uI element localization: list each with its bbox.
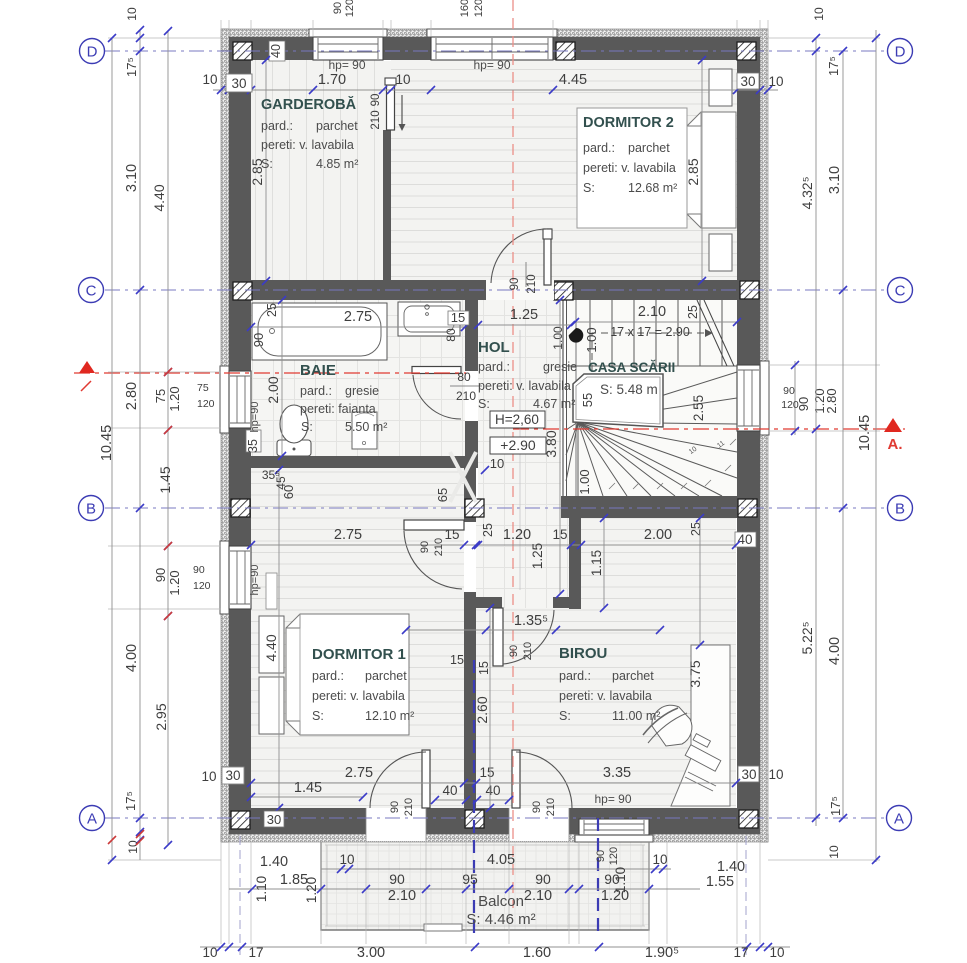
- svg-text:10: 10: [202, 72, 217, 87]
- svg-text:90: 90: [153, 568, 168, 582]
- svg-text:DORMITOR 1: DORMITOR 1: [312, 646, 406, 663]
- svg-text:2.80: 2.80: [124, 382, 140, 410]
- svg-text:gresie: gresie: [345, 384, 379, 398]
- svg-text:C: C: [895, 283, 906, 300]
- svg-text:D: D: [87, 44, 98, 61]
- svg-text:1.25: 1.25: [510, 307, 538, 323]
- svg-text:2.10: 2.10: [388, 888, 416, 904]
- svg-text:parchet: parchet: [612, 669, 654, 683]
- svg-text:2.95: 2.95: [153, 703, 169, 730]
- svg-text:B: B: [895, 501, 905, 518]
- svg-text:10: 10: [201, 769, 216, 784]
- svg-text:120: 120: [608, 847, 620, 865]
- svg-text:hp=90: hp=90: [249, 565, 261, 596]
- svg-text:S: 5.48 m: S: 5.48 m: [600, 382, 658, 397]
- svg-text:90: 90: [389, 871, 405, 887]
- svg-text:30: 30: [231, 76, 246, 91]
- svg-text:210: 210: [403, 798, 415, 816]
- svg-text:60: 60: [281, 485, 296, 499]
- svg-text:17⁵: 17⁵: [124, 57, 139, 77]
- svg-text:5.22⁵: 5.22⁵: [799, 621, 815, 654]
- svg-text:160: 160: [459, 0, 471, 17]
- svg-text:4.00: 4.00: [827, 637, 843, 665]
- svg-text:1.20: 1.20: [167, 386, 182, 411]
- svg-text:40: 40: [485, 783, 500, 798]
- svg-text:10: 10: [202, 945, 217, 960]
- svg-text:40: 40: [737, 532, 752, 547]
- svg-text:90: 90: [509, 278, 521, 291]
- svg-text:12.10 m²: 12.10 m²: [365, 709, 414, 723]
- svg-text:pereti: v. lavabila: pereti: v. lavabila: [261, 138, 354, 152]
- svg-text:40: 40: [442, 783, 457, 798]
- svg-text:30: 30: [740, 74, 755, 89]
- svg-text:pereti: v. lavabila: pereti: v. lavabila: [583, 161, 676, 175]
- svg-text:4.00: 4.00: [124, 644, 140, 672]
- svg-text:4.05: 4.05: [487, 852, 515, 868]
- svg-text:2.75: 2.75: [345, 765, 373, 781]
- svg-text:S:: S:: [312, 709, 324, 723]
- svg-text:3.00: 3.00: [357, 945, 385, 961]
- svg-text:pard.:: pard.:: [583, 141, 615, 155]
- svg-text:120: 120: [473, 0, 485, 17]
- svg-text:12.68 m²: 12.68 m²: [628, 181, 677, 195]
- svg-text:17: 17: [248, 945, 263, 960]
- svg-text:S:: S:: [261, 157, 273, 171]
- svg-text:1.90⁵: 1.90⁵: [645, 945, 679, 961]
- svg-text:2.75: 2.75: [334, 527, 362, 543]
- svg-text:3.35: 3.35: [603, 765, 631, 781]
- svg-text:1.70: 1.70: [318, 72, 346, 88]
- svg-text:hp=90: hp=90: [249, 402, 261, 433]
- svg-text:S:: S:: [583, 181, 595, 195]
- svg-text:10: 10: [827, 845, 841, 859]
- svg-text:1.00: 1.00: [584, 327, 599, 352]
- svg-text:S: 4.46 m²: S: 4.46 m²: [466, 911, 535, 928]
- svg-text:pereti: v. lavabila: pereti: v. lavabila: [559, 689, 652, 703]
- svg-text:17 x 17 = 2.90: 17 x 17 = 2.90: [610, 325, 690, 339]
- svg-text:75: 75: [153, 389, 168, 403]
- svg-text:210: 210: [526, 274, 538, 293]
- svg-text:10: 10: [768, 74, 783, 89]
- svg-text:90: 90: [595, 850, 607, 862]
- svg-text:90: 90: [251, 333, 266, 347]
- svg-text:10.45: 10.45: [857, 415, 873, 451]
- svg-text:gresie: gresie: [543, 360, 577, 374]
- svg-text:90: 90: [535, 871, 551, 887]
- svg-text:BAIE: BAIE: [300, 362, 336, 379]
- svg-text:75: 75: [197, 382, 209, 394]
- svg-text:parchet: parchet: [628, 141, 670, 155]
- svg-text:210: 210: [545, 798, 557, 816]
- svg-text:2.55: 2.55: [691, 395, 706, 421]
- svg-text:1.10: 1.10: [613, 867, 628, 893]
- svg-text:pard.:: pard.:: [300, 384, 332, 398]
- svg-text:2.75: 2.75: [344, 309, 372, 325]
- svg-text:10: 10: [339, 852, 354, 867]
- svg-text:S:: S:: [478, 397, 490, 411]
- svg-text:15: 15: [450, 653, 464, 667]
- svg-text:1.60: 1.60: [523, 945, 551, 961]
- svg-text:210: 210: [433, 538, 445, 556]
- svg-text:80: 80: [444, 328, 458, 342]
- svg-text:1.20: 1.20: [304, 877, 319, 903]
- svg-text:2.00: 2.00: [265, 376, 281, 403]
- svg-text:80: 80: [457, 370, 471, 384]
- svg-text:+2.90: +2.90: [500, 437, 536, 453]
- svg-text:parchet: parchet: [365, 669, 407, 683]
- svg-text:3.10: 3.10: [124, 164, 140, 192]
- svg-text:210: 210: [370, 110, 382, 129]
- svg-text:1.20: 1.20: [503, 527, 531, 543]
- svg-text:120: 120: [344, 0, 356, 17]
- svg-text:1.45: 1.45: [294, 780, 322, 796]
- svg-text:2.10: 2.10: [638, 304, 666, 320]
- svg-text:15: 15: [479, 765, 494, 780]
- svg-text:pereti: v. lavabila: pereti: v. lavabila: [312, 689, 405, 703]
- svg-text:30: 30: [225, 768, 240, 783]
- svg-text:BIROU: BIROU: [559, 645, 607, 662]
- svg-text:90: 90: [796, 397, 811, 411]
- svg-text:2.00: 2.00: [644, 527, 672, 543]
- svg-text:pard.:: pard.:: [478, 360, 510, 374]
- svg-text:A.: A.: [888, 436, 903, 453]
- svg-text:90: 90: [332, 2, 344, 14]
- svg-text:35: 35: [246, 439, 260, 453]
- svg-text:CASA SCĂRII: CASA SCĂRII: [588, 360, 675, 375]
- svg-text:25: 25: [481, 523, 495, 537]
- svg-text:hp= 90: hp= 90: [473, 58, 510, 72]
- svg-text:pereti: faianta: pereti: faianta: [300, 402, 376, 416]
- svg-text:5.50 m²: 5.50 m²: [345, 420, 387, 434]
- svg-text:S:: S:: [301, 420, 313, 434]
- svg-text:pard.:: pard.:: [261, 119, 293, 133]
- svg-text:1.20: 1.20: [167, 570, 182, 595]
- svg-text:4.40: 4.40: [263, 634, 279, 661]
- svg-text:17⁵: 17⁵: [828, 796, 843, 816]
- svg-text:120: 120: [193, 580, 211, 592]
- svg-text:90: 90: [193, 564, 205, 576]
- svg-text:25: 25: [686, 305, 700, 319]
- svg-text:30: 30: [741, 767, 756, 782]
- svg-text:3.75: 3.75: [687, 660, 703, 687]
- svg-text:HOL: HOL: [478, 339, 510, 356]
- svg-text:1.55: 1.55: [706, 874, 734, 890]
- svg-text:90: 90: [419, 541, 431, 553]
- svg-text:17⁵: 17⁵: [826, 56, 841, 76]
- svg-text:90: 90: [508, 645, 520, 657]
- svg-text:1.40: 1.40: [717, 859, 745, 875]
- svg-text:2.80: 2.80: [824, 388, 839, 413]
- svg-text:10: 10: [769, 945, 784, 960]
- svg-text:4.67 m²: 4.67 m²: [533, 397, 575, 411]
- svg-text:90: 90: [389, 801, 401, 813]
- svg-text:1.40: 1.40: [260, 854, 288, 870]
- svg-text:4.85 m²: 4.85 m²: [316, 157, 358, 171]
- svg-text:C: C: [86, 283, 97, 300]
- svg-text:10: 10: [768, 767, 783, 782]
- svg-text:120: 120: [197, 398, 215, 410]
- svg-text:210: 210: [522, 642, 534, 660]
- svg-text:3.10: 3.10: [827, 166, 843, 194]
- svg-text:1.45: 1.45: [157, 466, 173, 493]
- svg-text:1.10: 1.10: [254, 876, 269, 902]
- svg-text:4.32⁵: 4.32⁵: [799, 176, 815, 209]
- svg-text:11.00 m²: 11.00 m²: [612, 709, 660, 723]
- svg-text:parchet: parchet: [316, 119, 358, 133]
- svg-text:pard.:: pard.:: [559, 669, 591, 683]
- svg-text:1.15: 1.15: [589, 550, 604, 576]
- svg-text:Balcon: Balcon: [478, 893, 524, 910]
- svg-text:25: 25: [265, 303, 279, 317]
- svg-text:1.00: 1.00: [577, 469, 592, 494]
- svg-text:10: 10: [812, 7, 826, 21]
- svg-text:4.40: 4.40: [151, 184, 167, 211]
- svg-text:H=2,60: H=2,60: [495, 412, 539, 427]
- svg-text:210: 210: [456, 389, 476, 403]
- svg-text:90: 90: [370, 94, 382, 107]
- svg-text:65: 65: [435, 488, 450, 502]
- svg-text:90: 90: [783, 385, 795, 397]
- svg-text:15: 15: [451, 310, 465, 325]
- svg-text:hp= 90: hp= 90: [594, 792, 631, 806]
- svg-text:D: D: [895, 44, 906, 61]
- svg-text:95: 95: [462, 871, 478, 887]
- svg-text:10: 10: [395, 72, 410, 87]
- svg-text:1.35⁵: 1.35⁵: [514, 613, 548, 629]
- svg-text:pereti: v. lavabila: pereti: v. lavabila: [478, 379, 571, 393]
- svg-text:hp= 90: hp= 90: [328, 58, 365, 72]
- svg-text:GARDEROBĂ: GARDEROBĂ: [261, 96, 357, 113]
- svg-text:S:: S:: [559, 709, 571, 723]
- svg-text:15: 15: [444, 527, 459, 542]
- svg-text:30: 30: [267, 812, 281, 827]
- svg-text:25: 25: [689, 522, 703, 536]
- svg-text:17⁵: 17⁵: [123, 791, 138, 811]
- svg-text:90: 90: [531, 801, 543, 813]
- svg-text:40: 40: [269, 44, 283, 58]
- svg-text:15: 15: [477, 661, 491, 675]
- svg-text:A: A: [87, 811, 97, 828]
- svg-text:B: B: [86, 501, 96, 518]
- svg-text:1.00: 1.00: [551, 326, 565, 350]
- svg-text:2.60: 2.60: [474, 696, 490, 723]
- svg-text:55: 55: [580, 393, 595, 407]
- svg-text:10: 10: [490, 456, 504, 471]
- svg-text:10: 10: [125, 7, 139, 21]
- svg-text:A: A: [894, 811, 904, 828]
- svg-text:2.10: 2.10: [524, 888, 552, 904]
- svg-text:17: 17: [733, 945, 748, 960]
- svg-text:10.45: 10.45: [99, 425, 115, 461]
- svg-text:4.45: 4.45: [559, 72, 587, 88]
- svg-text:pard.:: pard.:: [312, 669, 344, 683]
- svg-text:1.25: 1.25: [530, 543, 545, 569]
- svg-text:DORMITOR 2: DORMITOR 2: [583, 115, 674, 131]
- svg-text:10: 10: [652, 852, 667, 867]
